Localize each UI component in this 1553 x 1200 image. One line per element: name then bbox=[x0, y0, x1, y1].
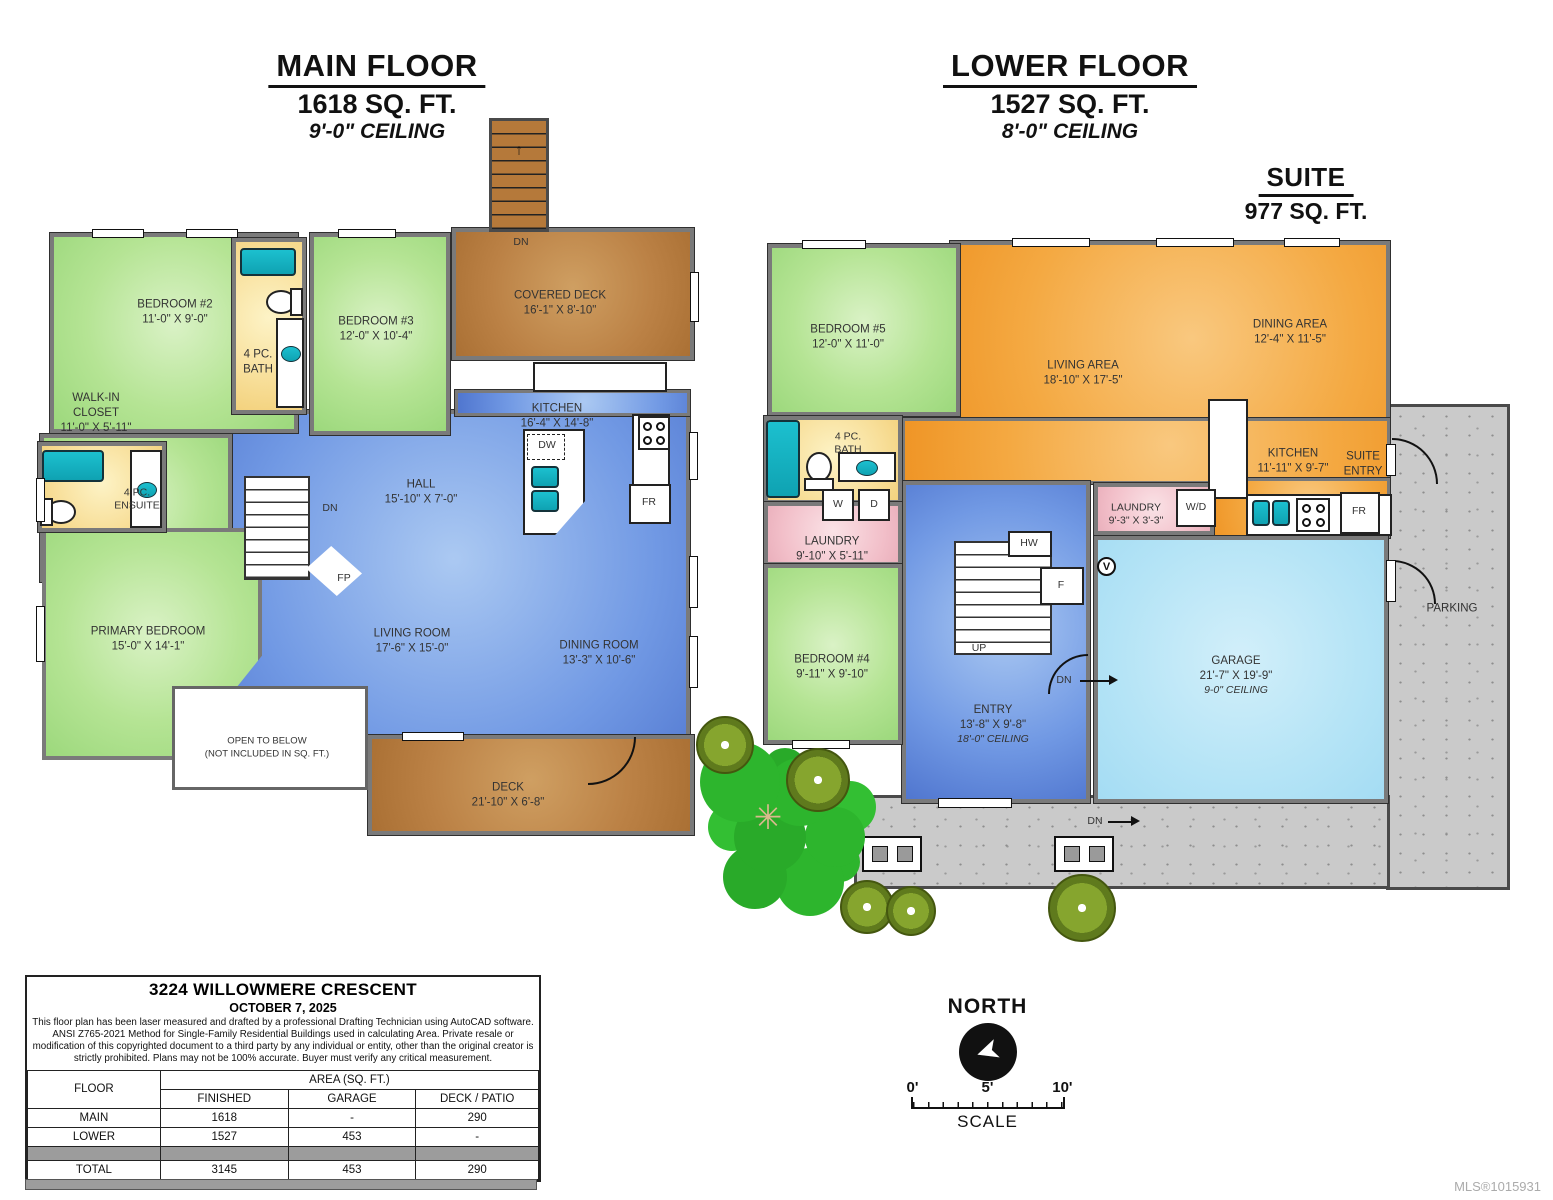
label-washer: W bbox=[833, 498, 843, 512]
suite-title-name: SUITE bbox=[1258, 162, 1353, 197]
main-floor-title-ceiling: 9'-0" CEILING bbox=[268, 120, 485, 144]
cell-garage bbox=[288, 1146, 416, 1160]
floor-plan-canvas: MAIN FLOOR 1618 SQ. FT. 9'-0" CEILING LO… bbox=[0, 0, 1553, 1200]
cell-garage: 453 bbox=[288, 1160, 416, 1179]
planter-square bbox=[1064, 846, 1080, 862]
window bbox=[1284, 238, 1340, 247]
label-suite-entry: SUITE ENTRY bbox=[1344, 435, 1383, 480]
burner bbox=[656, 436, 665, 445]
cell-deck bbox=[416, 1146, 539, 1160]
window bbox=[689, 636, 698, 688]
plan-date: OCTOBER 7, 2025 bbox=[27, 1001, 539, 1015]
scale-tick-5: 5' bbox=[982, 1079, 994, 1096]
label-dn-exterior-stairs: DN bbox=[513, 236, 528, 250]
cell-deck: - bbox=[416, 1127, 539, 1146]
label-lower-laundry: LAUNDRY9'-10" X 5'-11" bbox=[796, 520, 868, 565]
label-deck: DECK21'-10" X 6'-8" bbox=[472, 766, 545, 811]
tree-trunk-icon: ✳ bbox=[754, 798, 783, 838]
exterior-stairs-up bbox=[489, 118, 549, 232]
label-fridge-main: FR bbox=[642, 496, 656, 510]
scale-tick-0: 0' bbox=[907, 1079, 919, 1096]
planter-square bbox=[897, 846, 913, 862]
cell-finished: 1618 bbox=[160, 1108, 288, 1127]
window bbox=[689, 556, 698, 608]
cell-garage: - bbox=[288, 1108, 416, 1127]
floor-header: FLOOR bbox=[28, 1070, 161, 1108]
label-covered-deck: COVERED DECK16'-1" X 8'-10" bbox=[514, 274, 606, 319]
burner bbox=[643, 422, 652, 431]
island-sink-1 bbox=[531, 466, 559, 488]
cell-floor: MAIN bbox=[28, 1108, 161, 1127]
garage-door-opening bbox=[1386, 560, 1396, 602]
floor-plan-page: { "titles": { "main": {"l1": "MAIN FLOOR… bbox=[0, 0, 1553, 1200]
main-bath-sink bbox=[281, 346, 301, 362]
main-floor-title-name: MAIN FLOOR bbox=[268, 48, 485, 88]
mls-number: MLS®1015931 bbox=[1454, 1179, 1541, 1194]
burner bbox=[1302, 504, 1311, 513]
label-dining-area: DINING AREA12'-4" X 11'-5" bbox=[1253, 303, 1327, 348]
main-bath-toilet-tank bbox=[290, 288, 303, 316]
planter-box-1 bbox=[862, 836, 922, 872]
compass-block: NORTH ➤ 0' 5' 10' SCALE bbox=[905, 995, 1070, 1132]
label-primary-bedroom: PRIMARY BEDROOM15'-0" X 14'-1" bbox=[91, 610, 206, 655]
lower-floor-title: LOWER FLOOR 1527 SQ. FT. 8'-0" CEILING bbox=[943, 48, 1197, 144]
label-bedroom3: BEDROOM #312'-0" X 10'-4" bbox=[338, 300, 413, 345]
burner bbox=[643, 436, 652, 445]
label-bedroom2: BEDROOM #211'-0" X 9'-0" bbox=[137, 283, 212, 328]
window bbox=[36, 606, 45, 662]
label-bedroom5: BEDROOM #512'-0" X 11'-0" bbox=[810, 308, 885, 353]
cell-finished bbox=[160, 1146, 288, 1160]
window bbox=[186, 229, 238, 238]
main-floor-title-sqft: 1618 SQ. FT. bbox=[268, 89, 485, 120]
suite-sink-2 bbox=[1272, 500, 1290, 526]
window bbox=[36, 478, 45, 522]
entry-door-opening bbox=[938, 798, 1012, 808]
suite-kitchen-counter-vert bbox=[1208, 399, 1248, 499]
window bbox=[802, 240, 866, 249]
lower-bath-tub bbox=[766, 420, 800, 498]
bush-icon bbox=[886, 886, 936, 936]
island-sink-2 bbox=[531, 490, 559, 512]
suite-entry-opening bbox=[1386, 444, 1396, 476]
cell-finished: 3145 bbox=[160, 1160, 288, 1179]
north-arrow-icon: ➤ bbox=[970, 1031, 1005, 1072]
table-row-total: TOTAL 3145 453 290 bbox=[28, 1160, 539, 1179]
label-living-area: LIVING AREA18'-10" X 17'-5" bbox=[1043, 344, 1122, 389]
bush-icon bbox=[786, 748, 850, 812]
planter-box-2 bbox=[1054, 836, 1114, 872]
interior-stairs-down bbox=[244, 476, 310, 580]
label-suite-washer-dryer: W/D bbox=[1186, 501, 1206, 515]
north-label: NORTH bbox=[905, 995, 1070, 1019]
lower-bath-toilet-tank bbox=[804, 478, 834, 491]
burner bbox=[1316, 504, 1325, 513]
label-hot-water: HW bbox=[1020, 537, 1038, 551]
scale-ruler: 0' 5' 10' bbox=[911, 1097, 1065, 1109]
table-row-main: MAIN 1618 - 290 bbox=[28, 1108, 539, 1127]
ensuite-tub bbox=[42, 450, 104, 482]
label-ensuite: 4 PC. ENSUITE bbox=[114, 473, 160, 514]
label-living-room: LIVING ROOM17'-6" X 15'-0" bbox=[374, 612, 451, 657]
area-table: FLOOR AREA (SQ. FT.) FINISHED GARAGE DEC… bbox=[27, 1070, 539, 1180]
bush-icon bbox=[1048, 874, 1116, 942]
window bbox=[1156, 238, 1234, 247]
bush-icon bbox=[696, 716, 754, 774]
suite-stove-icon bbox=[1296, 498, 1330, 532]
label-parking: PARKING bbox=[1427, 602, 1478, 617]
cell-floor bbox=[28, 1146, 161, 1160]
label-fridge-suite: FR bbox=[1352, 505, 1366, 519]
interior-stairs-up bbox=[954, 541, 1052, 655]
suite-sink-1 bbox=[1252, 500, 1270, 526]
suite-title: SUITE 977 SQ. FT. bbox=[1245, 162, 1368, 225]
scale-label: SCALE bbox=[905, 1112, 1070, 1132]
main-floor-title: MAIN FLOOR 1618 SQ. FT. 9'-0" CEILING bbox=[268, 48, 485, 144]
lower-floor-title-name: LOWER FLOOR bbox=[943, 48, 1197, 88]
label-bedroom4: BEDROOM #49'-11" X 9'-10" bbox=[794, 638, 869, 683]
label-garage: GARAGE21'-7" X 19'-9"9-0" CEILING bbox=[1200, 639, 1273, 697]
label-main-bath: 4 PC. BATH bbox=[243, 333, 273, 378]
scale-tick-10: 10' bbox=[1052, 1079, 1072, 1096]
window bbox=[92, 229, 144, 238]
planter-square bbox=[872, 846, 888, 862]
area-header: AREA (SQ. FT.) bbox=[160, 1070, 538, 1089]
address: 3224 WILLOWMERE CRESCENT bbox=[27, 980, 539, 1000]
label-suite-laundry: LAUNDRY9'-3" X 3'-3" bbox=[1109, 488, 1164, 529]
col-header-deck: DECK / PATIO bbox=[416, 1089, 539, 1108]
table-row: FLOOR AREA (SQ. FT.) bbox=[28, 1070, 539, 1089]
label-dn-hall: DN bbox=[322, 502, 337, 516]
cell-finished: 1527 bbox=[160, 1127, 288, 1146]
cell-floor: LOWER bbox=[28, 1127, 161, 1146]
main-bath-tub bbox=[240, 248, 296, 276]
burner bbox=[656, 422, 665, 431]
window bbox=[690, 272, 699, 322]
lower-floor-title-sqft: 1527 SQ. FT. bbox=[943, 89, 1197, 120]
dn-walkway-arrow-icon bbox=[1108, 821, 1136, 823]
label-hall: HALL15'-10" X 7'-0" bbox=[385, 463, 458, 508]
stove-icon bbox=[638, 416, 670, 450]
stairs-up-arrow-icon: ↑ bbox=[515, 140, 523, 160]
label-lower-bath: 4 PC. BATH bbox=[834, 417, 861, 458]
cell-garage: 453 bbox=[288, 1127, 416, 1146]
label-entry: ENTRY13'-8" X 9'-8"18'-0" CEILING bbox=[957, 688, 1029, 746]
window bbox=[338, 229, 396, 238]
main-bath-vanity bbox=[276, 318, 304, 408]
label-dryer: D bbox=[870, 498, 878, 512]
label-dining-room: DINING ROOM13'-3" X 10'-6" bbox=[559, 624, 638, 669]
window bbox=[689, 432, 698, 480]
vent-marker: V bbox=[1097, 557, 1116, 576]
disclaimer-text: This floor plan has been laser measured … bbox=[27, 1015, 539, 1070]
label-dn-walkway: DN bbox=[1087, 815, 1102, 829]
planter-square bbox=[1089, 846, 1105, 862]
window bbox=[1012, 238, 1090, 247]
cell-floor: TOTAL bbox=[28, 1160, 161, 1179]
label-kitchen-main: KITCHEN16'-4" X 14'-8" bbox=[521, 387, 594, 432]
label-dishwasher: DW bbox=[538, 439, 556, 453]
label-furnace: F bbox=[1058, 579, 1064, 593]
info-box-bottom-bar bbox=[25, 1179, 537, 1190]
cell-deck: 290 bbox=[416, 1108, 539, 1127]
suite-title-sqft: 977 SQ. FT. bbox=[1245, 198, 1368, 225]
table-row-lower: LOWER 1527 453 - bbox=[28, 1127, 539, 1146]
dn-garage-arrow-icon bbox=[1080, 680, 1114, 682]
label-open-to-below: OPEN TO BELOW(NOT INCLUDED IN SQ. FT.) bbox=[205, 723, 329, 760]
cell-deck: 290 bbox=[416, 1160, 539, 1179]
label-fireplace: FP bbox=[337, 572, 350, 586]
info-box: 3224 WILLOWMERE CRESCENT OCTOBER 7, 2025… bbox=[25, 975, 541, 1182]
col-header-garage: GARAGE bbox=[288, 1089, 416, 1108]
window bbox=[402, 732, 464, 741]
walkway bbox=[854, 795, 1390, 889]
label-dn-garage: DN bbox=[1056, 674, 1071, 688]
col-header-finished: FINISHED bbox=[160, 1089, 288, 1108]
table-row-spacer bbox=[28, 1146, 539, 1160]
burner bbox=[1302, 518, 1311, 527]
label-suite-kitchen: KITCHEN11'-11" X 9'-7" bbox=[1258, 432, 1329, 477]
lower-floor-title-ceiling: 8'-0" CEILING bbox=[943, 120, 1197, 144]
lower-bath-sink bbox=[856, 460, 878, 476]
label-up-stairs: UP bbox=[972, 642, 987, 656]
label-walk-in-closet: WALK-IN CLOSET11'-0" X 5'-11" bbox=[61, 376, 132, 436]
north-compass-icon: ➤ bbox=[959, 1023, 1017, 1081]
burner bbox=[1316, 518, 1325, 527]
